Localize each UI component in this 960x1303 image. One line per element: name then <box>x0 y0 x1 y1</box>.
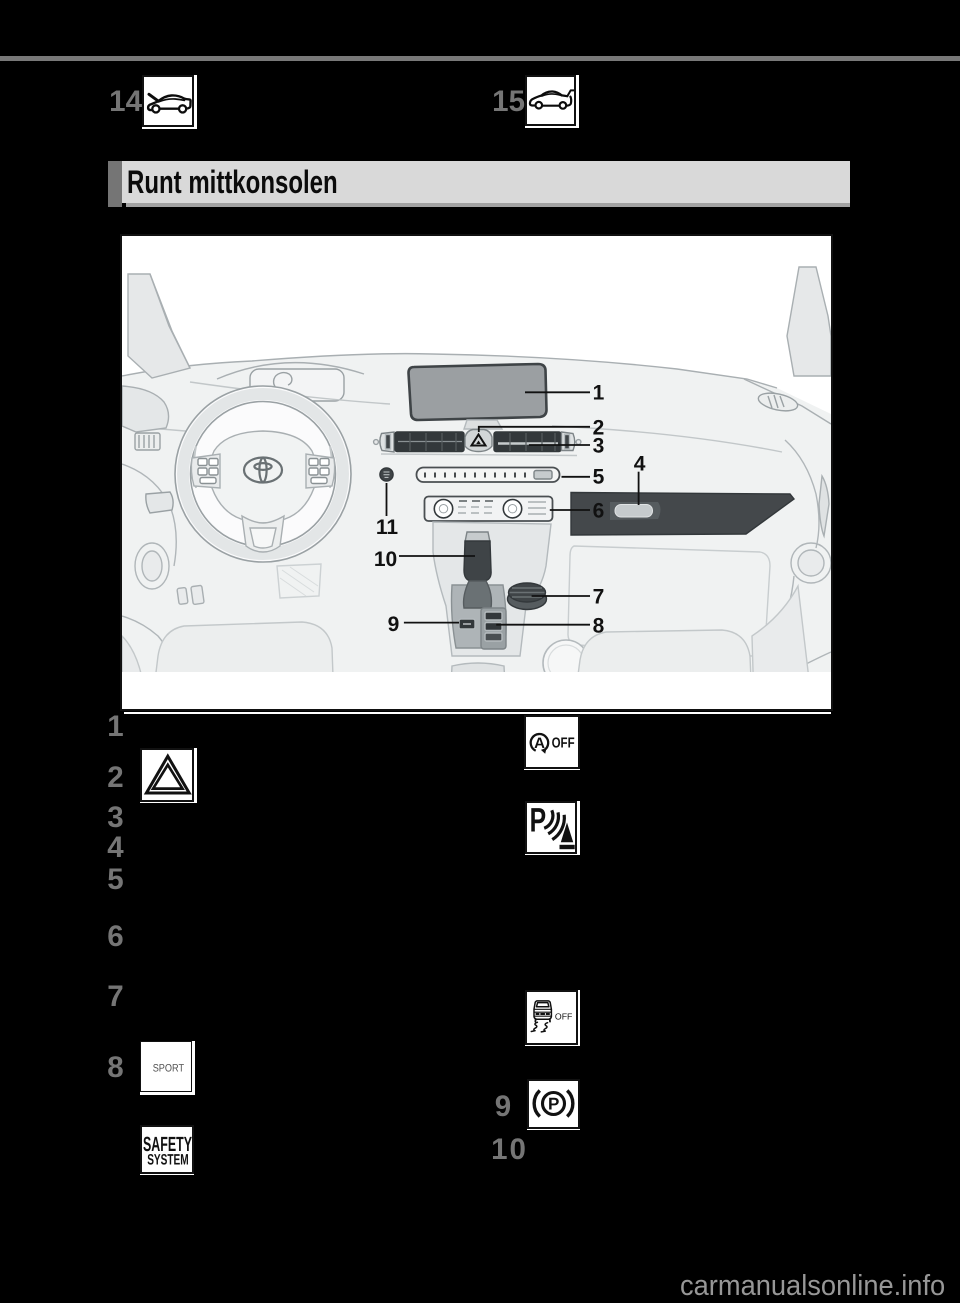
svg-text:7: 7 <box>593 586 605 609</box>
svg-text:P: P <box>529 802 546 840</box>
svg-text:SPORT: SPORT <box>153 1063 185 1075</box>
svg-text:8: 8 <box>593 615 605 638</box>
svg-text:P: P <box>548 1095 559 1114</box>
svg-text:10: 10 <box>374 548 397 571</box>
svg-text:3: 3 <box>593 435 605 458</box>
svg-text:SYSTEM: SYSTEM <box>147 1152 189 1169</box>
svg-text:11: 11 <box>376 516 399 539</box>
svg-text:5: 5 <box>593 466 605 489</box>
svg-text:OFF: OFF <box>552 735 575 751</box>
svg-text:4: 4 <box>634 453 646 476</box>
svg-text:A: A <box>534 735 545 752</box>
svg-text:9: 9 <box>388 613 400 636</box>
svg-text:OFF: OFF <box>555 1011 573 1021</box>
svg-text:1: 1 <box>593 382 605 405</box>
svg-text:6: 6 <box>593 500 605 523</box>
